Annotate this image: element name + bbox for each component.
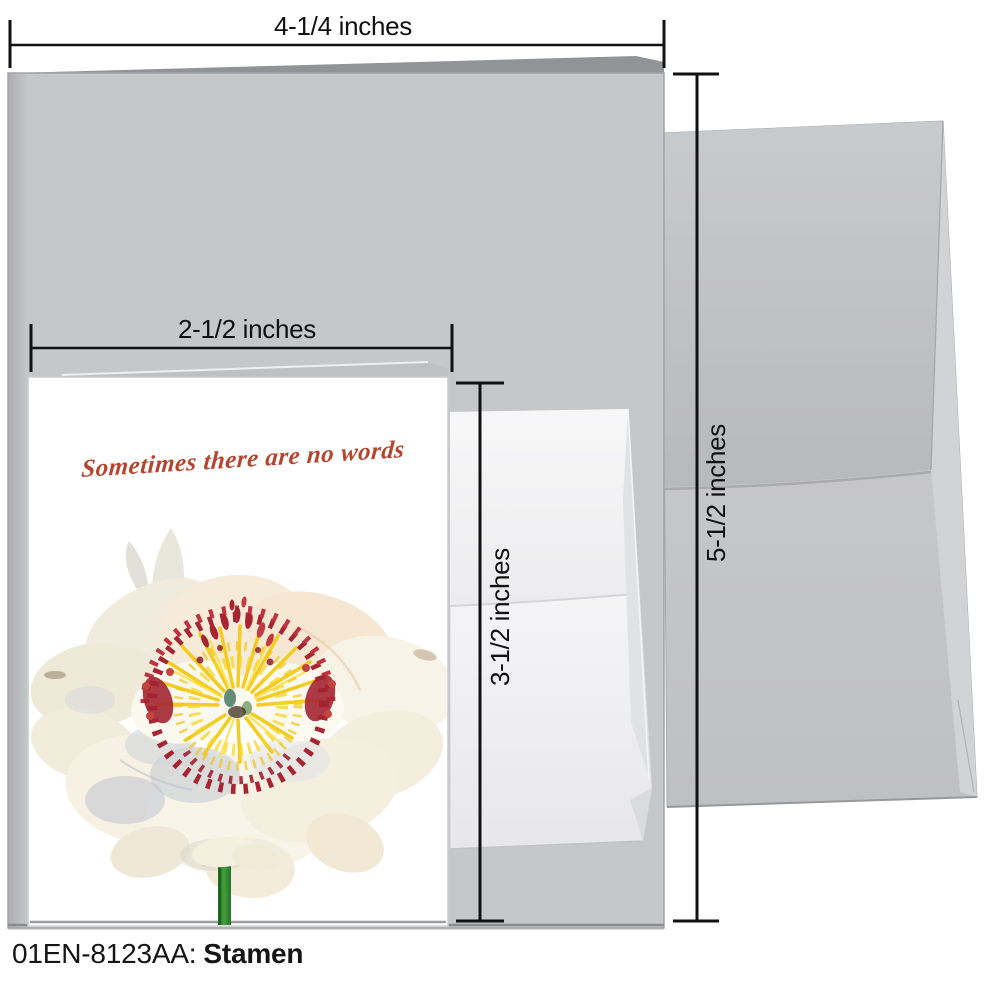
product-code: 01EN-8123AA: (12, 938, 196, 969)
product-name: Stamen (203, 938, 303, 969)
small-envelope-flap (450, 409, 634, 606)
large-card-back-fold (12, 56, 664, 73)
product-mockup-image: 4-1/4 inches 2-1/2 inches 3-1/2 inches 5… (0, 0, 984, 984)
dim-label-width-small: 2-1/2 inches (167, 316, 327, 342)
dim-label-width-large: 4-1/4 inches (263, 13, 423, 39)
dim-label-height-small: 3-1/2 inches (487, 537, 513, 697)
mockup-graphics (0, 0, 984, 984)
dim-label-height-large: 5-1/2 inches (703, 413, 729, 573)
product-caption: 01EN-8123AA:Stamen (12, 938, 303, 970)
